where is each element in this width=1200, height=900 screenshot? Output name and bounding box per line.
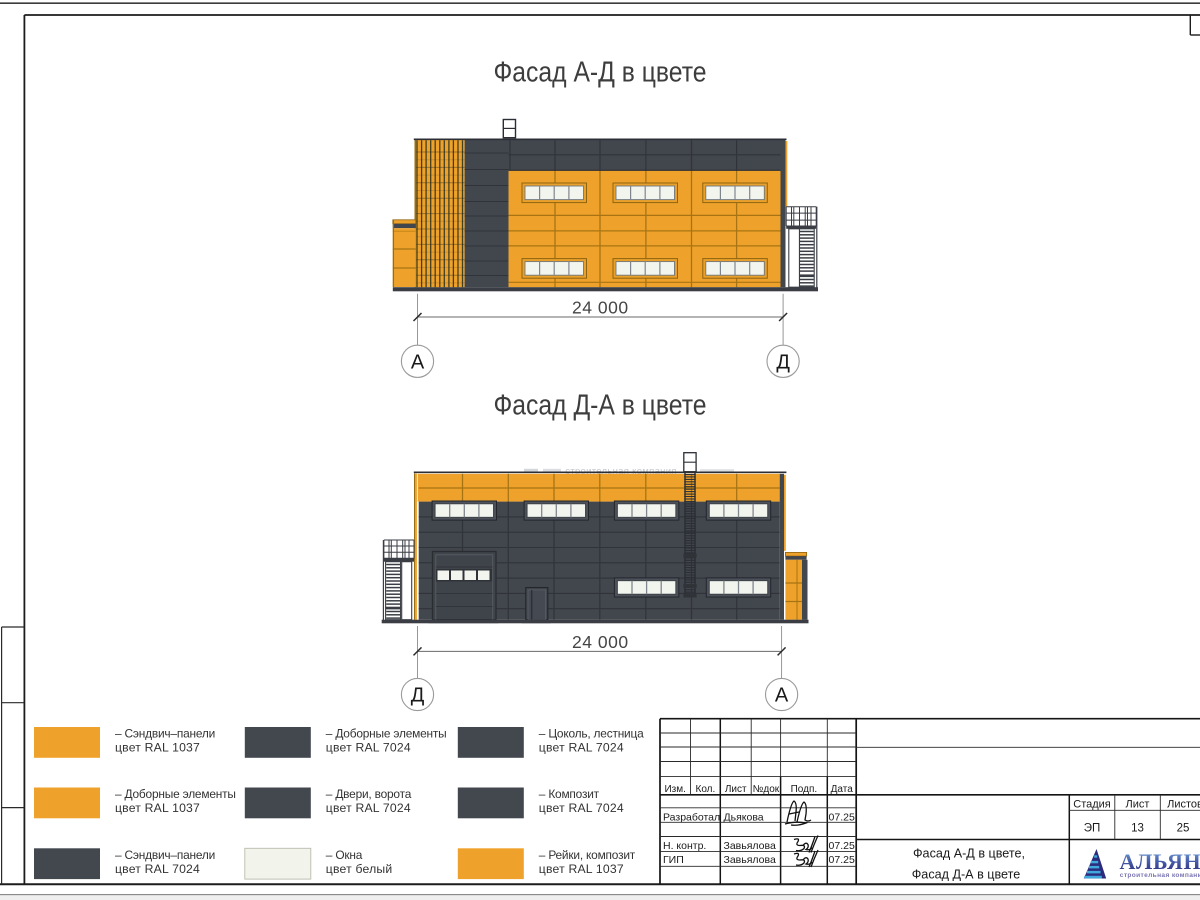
svg-text:цвет RAL 7024: цвет RAL 7024 — [326, 801, 411, 815]
svg-text:Фасад А-Д в цвете: Фасад А-Д в цвете — [494, 57, 707, 89]
svg-text:13: 13 — [1131, 823, 1144, 835]
svg-text:Дата: Дата — [831, 784, 854, 795]
svg-text:Изм.: Изм. — [664, 784, 685, 795]
svg-text:ЭП: ЭП — [1084, 823, 1101, 835]
svg-text:Дьякова: Дьякова — [724, 812, 764, 824]
svg-text:цвет RAL 1037: цвет RAL 1037 — [539, 862, 624, 876]
svg-text:Завьялова: Завьялова — [724, 840, 776, 852]
svg-text:А: А — [411, 351, 425, 373]
svg-text:Завьялова: Завьялова — [724, 854, 776, 866]
svg-text:цвет RAL 7024: цвет RAL 7024 — [326, 741, 411, 755]
svg-text:Н. контр.: Н. контр. — [663, 840, 706, 852]
svg-text:Разработал: Разработал — [663, 812, 720, 824]
svg-text:– Доборные элементы: – Доборные элементы — [115, 787, 236, 801]
svg-text:Фасад Д-А в цвете: Фасад Д-А в цвете — [494, 390, 707, 422]
svg-text:Д: Д — [411, 685, 425, 707]
svg-text:Стадия: Стадия — [1073, 798, 1111, 810]
svg-text:24 000: 24 000 — [572, 632, 629, 652]
svg-text:цвет RAL 1037: цвет RAL 1037 — [115, 741, 200, 755]
svg-text:АЛЬЯНС: АЛЬЯНС — [1120, 849, 1200, 874]
svg-text:цвет белый: цвет белый — [326, 862, 393, 876]
svg-text:– Сэндвич–панели: – Сэндвич–панели — [115, 848, 215, 862]
svg-text:№док: №док — [753, 784, 780, 795]
svg-text:Д: Д — [776, 351, 790, 373]
svg-text:07.25: 07.25 — [829, 812, 855, 824]
svg-text:А: А — [775, 685, 789, 707]
svg-text:– Доборные элементы: – Доборные элементы — [326, 727, 447, 741]
svg-text:цвет RAL 7024: цвет RAL 7024 — [539, 741, 624, 755]
svg-text:строительная компания: строительная компания — [1120, 872, 1200, 879]
svg-text:– Окна: – Окна — [326, 848, 363, 862]
svg-text:Подп.: Подп. — [791, 784, 818, 795]
svg-text:Фасад Д-А в цвете: Фасад Д-А в цвете — [912, 867, 1021, 881]
svg-text:Листов: Листов — [1167, 798, 1200, 810]
svg-text:цвет RAL 7024: цвет RAL 7024 — [115, 862, 200, 876]
svg-text:– Композит: – Композит — [539, 787, 600, 801]
svg-text:– Двери, ворота: – Двери, ворота — [326, 787, 412, 801]
svg-text:25: 25 — [1177, 823, 1190, 835]
svg-text:– Сэндвич–панели: – Сэндвич–панели — [115, 727, 215, 741]
svg-text:цвет RAL 7024: цвет RAL 7024 — [539, 801, 624, 815]
svg-text:– Цоколь, лестница: – Цоколь, лестница — [539, 727, 644, 741]
svg-text:24 000: 24 000 — [572, 298, 629, 318]
svg-text:Лист: Лист — [1126, 798, 1150, 810]
svg-text:Фасад А-Д в цвете,: Фасад А-Д в цвете, — [913, 846, 1025, 860]
svg-text:07.25: 07.25 — [829, 840, 855, 852]
svg-text:ГИП: ГИП — [663, 854, 684, 866]
svg-text:Лист: Лист — [725, 784, 747, 795]
svg-text:07.25: 07.25 — [829, 854, 855, 866]
svg-text:Кол.: Кол. — [696, 784, 716, 795]
svg-text:– Рейки, композит: – Рейки, композит — [539, 848, 636, 862]
svg-text:цвет RAL 1037: цвет RAL 1037 — [115, 801, 200, 815]
